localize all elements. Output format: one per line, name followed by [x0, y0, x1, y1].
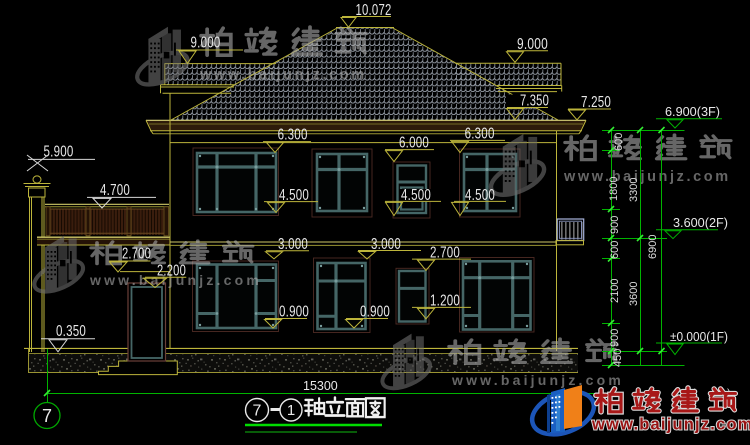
svg-text:0.350: 0.350: [56, 323, 86, 340]
svg-text:15300: 15300: [303, 379, 338, 393]
svg-text:2.700: 2.700: [122, 245, 151, 262]
svg-text:1800: 1800: [608, 177, 620, 201]
svg-text:3300: 3300: [628, 178, 640, 202]
svg-text:www.baijunjz.com: www.baijunjz.com: [591, 416, 750, 434]
svg-text:7.350: 7.350: [520, 92, 549, 109]
svg-text:0.900: 0.900: [279, 304, 309, 321]
svg-text:3.600(2F): 3.600(2F): [673, 215, 728, 230]
svg-text:7: 7: [253, 403, 262, 420]
svg-text:9.000: 9.000: [191, 35, 221, 52]
svg-text:4.700: 4.700: [100, 182, 130, 199]
svg-text:900: 900: [609, 329, 621, 347]
svg-text:6.000: 6.000: [399, 135, 429, 152]
svg-text:6.900(3F): 6.900(3F): [665, 104, 720, 119]
svg-text:www.baijunjz.com: www.baijunjz.com: [563, 169, 731, 185]
svg-text:600: 600: [613, 133, 625, 151]
svg-text:900: 900: [609, 216, 621, 234]
svg-text:7: 7: [42, 406, 52, 426]
svg-text:600: 600: [609, 241, 621, 259]
svg-text:7.250: 7.250: [581, 94, 611, 111]
svg-text:6.300: 6.300: [278, 126, 308, 143]
svg-text:2100: 2100: [609, 279, 621, 303]
svg-text:3600: 3600: [628, 282, 640, 306]
svg-text:5.900: 5.900: [44, 144, 74, 161]
svg-text:0.900: 0.900: [360, 304, 390, 321]
svg-text:450: 450: [612, 349, 624, 367]
svg-text:±0.000(1F): ±0.000(1F): [670, 329, 728, 344]
svg-text:www.baijunjz.com: www.baijunjz.com: [199, 67, 367, 83]
svg-text:6900: 6900: [647, 235, 659, 259]
svg-text:www.baijunjz.com: www.baijunjz.com: [451, 372, 624, 388]
svg-text:1: 1: [287, 402, 295, 419]
